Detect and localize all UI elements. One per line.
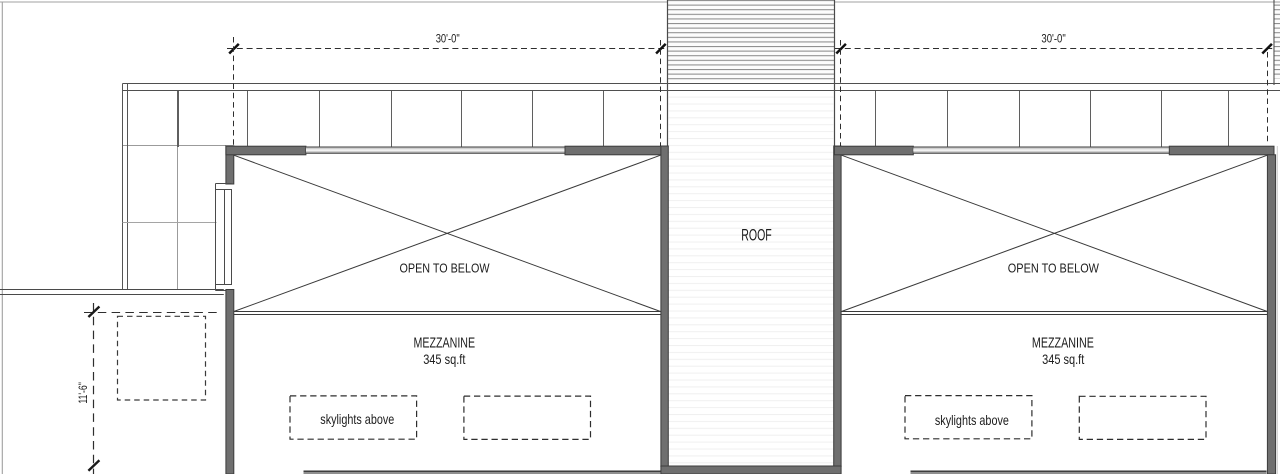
svg-text:30'-0": 30'-0" [1041, 31, 1065, 45]
svg-text:345 sq.ft: 345 sq.ft [423, 351, 465, 367]
svg-text:MEZZANINE: MEZZANINE [1032, 334, 1094, 351]
svg-text:ROOF: ROOF [741, 226, 772, 244]
svg-text:MEZZANINE: MEZZANINE [414, 334, 476, 351]
svg-text:skylights above: skylights above [320, 411, 394, 427]
svg-text:345 sq.ft: 345 sq.ft [1042, 351, 1084, 367]
svg-text:11'-6": 11'-6" [76, 382, 90, 404]
svg-text:skylights above: skylights above [935, 412, 1009, 428]
svg-text:OPEN TO BELOW: OPEN TO BELOW [400, 261, 490, 275]
svg-text:OPEN TO BELOW: OPEN TO BELOW [1008, 261, 1099, 275]
svg-text:30'-0": 30'-0" [436, 31, 460, 45]
